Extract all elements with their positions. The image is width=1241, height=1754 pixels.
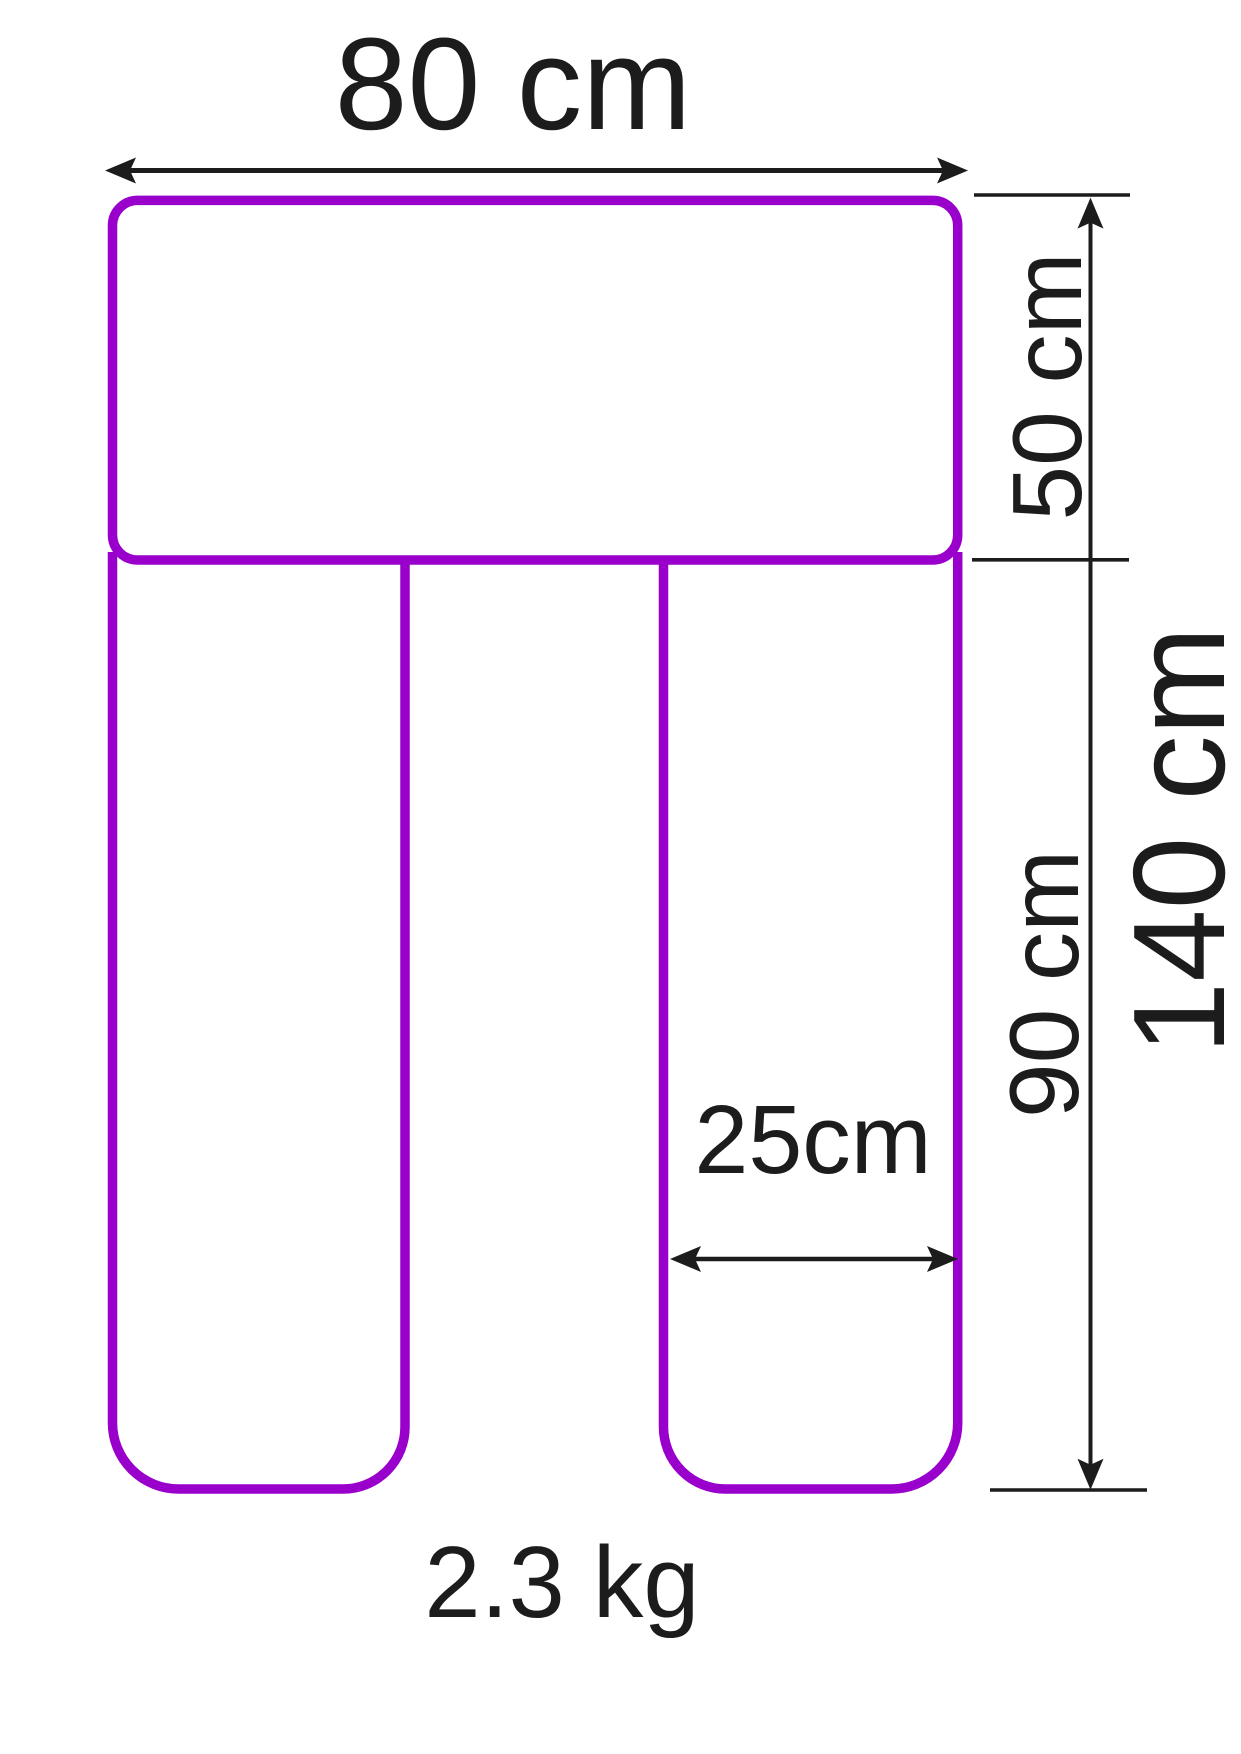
svg-text:80 cm: 80 cm	[335, 10, 692, 157]
svg-text:2.3 kg: 2.3 kg	[424, 1527, 699, 1639]
svg-text:50 cm: 50 cm	[992, 252, 1102, 520]
svg-text:90 cm: 90 cm	[989, 850, 1099, 1118]
svg-text:25cm: 25cm	[694, 1085, 931, 1194]
svg-text:140 cm: 140 cm	[1106, 627, 1241, 1055]
